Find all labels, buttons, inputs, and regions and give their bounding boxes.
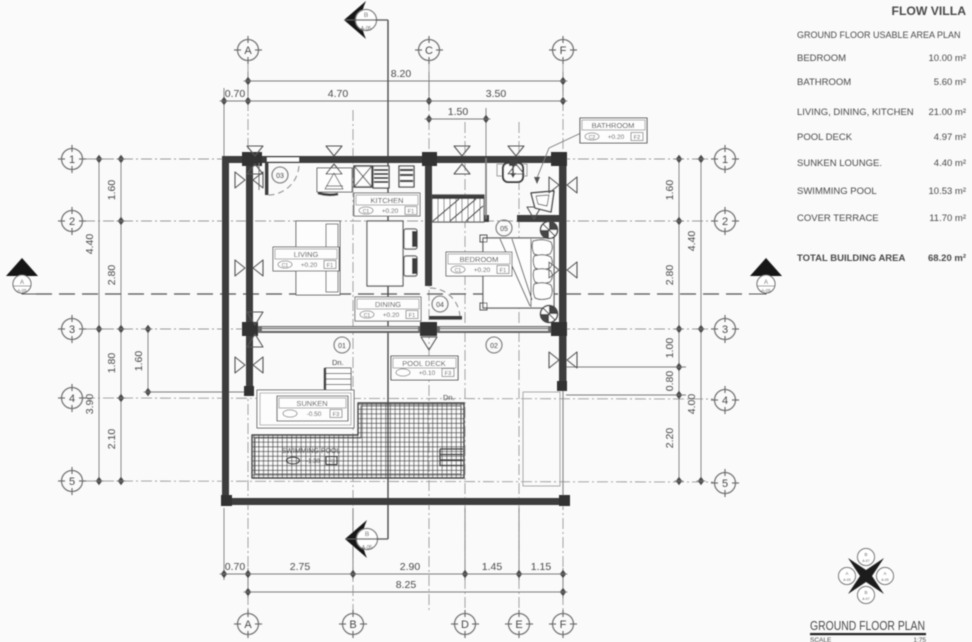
svg-text:4.40: 4.40 — [84, 234, 96, 255]
svg-text:1.80: 1.80 — [106, 353, 118, 374]
svg-text:4: 4 — [722, 395, 728, 407]
svg-text:A: A — [883, 571, 886, 576]
svg-text:LIVING: LIVING — [294, 250, 319, 259]
svg-text:C1: C1 — [282, 263, 289, 269]
svg-text:POOL DECK: POOL DECK — [402, 359, 445, 368]
svg-text:A-05: A-05 — [843, 578, 850, 582]
svg-text:B: B — [364, 12, 368, 19]
svg-text:5: 5 — [69, 476, 75, 488]
svg-text:C1: C1 — [363, 209, 370, 215]
svg-text:1.60: 1.60 — [133, 351, 145, 372]
svg-text:E: E — [515, 619, 522, 631]
svg-text:Dn.: Dn. — [443, 393, 455, 402]
svg-text:0.80: 0.80 — [664, 371, 676, 392]
svg-text:10.00 m²: 10.00 m² — [929, 53, 967, 64]
svg-text:A: A — [20, 280, 24, 286]
svg-text:5: 5 — [722, 478, 728, 490]
svg-text:D: D — [461, 619, 469, 631]
svg-text:A: A — [845, 571, 848, 576]
svg-text:68.20 m²: 68.20 m² — [928, 253, 966, 264]
svg-text:2.75: 2.75 — [290, 561, 311, 573]
svg-text:2.80: 2.80 — [106, 265, 118, 286]
svg-text:1.60: 1.60 — [664, 180, 676, 201]
svg-text:3.50: 3.50 — [486, 88, 507, 100]
svg-text:+0.20: +0.20 — [608, 134, 625, 141]
svg-text:3: 3 — [69, 324, 75, 336]
svg-text:LIVING, DINING, KITCHEN: LIVING, DINING, KITCHEN — [797, 107, 914, 118]
svg-text:POOL DECK: POOL DECK — [797, 132, 853, 143]
svg-text:F1: F1 — [500, 268, 506, 274]
svg-text:DINING: DINING — [375, 300, 401, 309]
svg-text:F2: F2 — [634, 135, 640, 141]
svg-text:1: 1 — [69, 154, 75, 166]
svg-text:+0.10: +0.10 — [419, 370, 436, 377]
svg-text:2.90: 2.90 — [400, 561, 421, 573]
svg-text:8.20: 8.20 — [391, 68, 412, 80]
svg-text:B: B — [864, 552, 867, 557]
svg-text:3.90: 3.90 — [84, 394, 96, 415]
svg-text:4.00: 4.00 — [686, 394, 698, 415]
svg-text:1.60: 1.60 — [106, 180, 118, 201]
svg-text:BATHROOM: BATHROOM — [797, 77, 851, 88]
svg-text:+0.20: +0.20 — [383, 312, 400, 319]
svg-text:+0.20: +0.20 — [474, 267, 491, 274]
svg-text:COVER TERRACE: COVER TERRACE — [797, 213, 879, 224]
svg-text:SCALE: SCALE — [810, 637, 832, 642]
svg-text:F: F — [560, 619, 567, 631]
svg-text:2.20: 2.20 — [664, 428, 676, 449]
svg-text:B: B — [349, 619, 356, 631]
svg-text:04: 04 — [436, 302, 444, 309]
svg-text:1: 1 — [722, 154, 728, 166]
svg-text:+0.20: +0.20 — [382, 208, 399, 215]
svg-text:BEDROOM: BEDROOM — [460, 255, 499, 264]
svg-text:B: B — [365, 531, 369, 538]
svg-text:2.80: 2.80 — [664, 265, 676, 286]
svg-text:1:75: 1:75 — [913, 637, 926, 642]
svg-text:0.70: 0.70 — [225, 561, 246, 573]
svg-text:03: 03 — [276, 173, 284, 180]
svg-text:11.70 m²: 11.70 m² — [929, 213, 966, 224]
svg-text:01: 01 — [338, 343, 346, 350]
svg-text:A-07: A-07 — [862, 597, 869, 601]
svg-text:B: B — [864, 590, 867, 595]
svg-text:-0.50: -0.50 — [307, 411, 322, 418]
svg-text:8.25: 8.25 — [396, 579, 417, 591]
svg-text:TOTAL BUILDING AREA: TOTAL BUILDING AREA — [797, 253, 906, 264]
svg-text:2: 2 — [69, 216, 75, 228]
svg-text:GROUND FLOOR PLAN: GROUND FLOOR PLAN — [810, 619, 925, 633]
svg-text:A: A — [764, 280, 768, 286]
svg-text:+0.20: +0.20 — [301, 262, 318, 269]
svg-text:FLOW VILLA: FLOW VILLA — [892, 4, 967, 18]
svg-text:4.70: 4.70 — [328, 88, 349, 100]
svg-text:A: A — [244, 45, 252, 57]
svg-text:GROUND FLOOR USABLE AREA PLAN: GROUND FLOOR USABLE AREA PLAN — [797, 30, 961, 40]
svg-text:SUNKEN LOUNGE.: SUNKEN LOUNGE. — [797, 158, 882, 169]
svg-text:1.00: 1.00 — [664, 338, 676, 359]
svg-text:A-05: A-05 — [362, 545, 373, 551]
svg-text:1.50: 1.50 — [448, 106, 469, 118]
svg-text:C1: C1 — [455, 268, 462, 274]
svg-text:2.10: 2.10 — [106, 429, 118, 450]
svg-text:02: 02 — [490, 343, 498, 350]
svg-text:F1: F1 — [327, 263, 333, 269]
svg-text:F3: F3 — [445, 371, 451, 377]
svg-text:A: A — [244, 619, 252, 631]
svg-text:F3: F3 — [333, 412, 339, 418]
svg-text:-1.30: -1.30 — [306, 459, 320, 465]
svg-text:05: 05 — [500, 226, 508, 233]
svg-text:4: 4 — [69, 393, 75, 405]
svg-text:5.60 m²: 5.60 m² — [934, 77, 966, 88]
svg-text:C2: C2 — [589, 135, 596, 141]
svg-text:F1: F1 — [409, 313, 415, 319]
svg-text:0.70: 0.70 — [225, 88, 246, 100]
svg-text:4.40: 4.40 — [686, 231, 698, 252]
svg-text:4.97 m²: 4.97 m² — [934, 132, 966, 143]
svg-text:C1: C1 — [364, 313, 371, 319]
svg-text:1.15: 1.15 — [531, 561, 552, 573]
svg-text:BATHROOM: BATHROOM — [592, 121, 635, 130]
svg-text:2: 2 — [722, 216, 728, 228]
svg-text:10.53 m²: 10.53 m² — [929, 186, 967, 197]
svg-text:3: 3 — [722, 324, 728, 336]
svg-text:F3: F3 — [329, 459, 335, 465]
svg-text:BEDROOM: BEDROOM — [797, 53, 846, 64]
svg-text:A-05: A-05 — [17, 288, 27, 293]
svg-text:KITCHEN: KITCHEN — [371, 196, 404, 205]
svg-text:SWIMMING POOL: SWIMMING POOL — [797, 186, 877, 197]
svg-text:A-05: A-05 — [361, 26, 372, 32]
svg-text:F1: F1 — [408, 209, 414, 215]
svg-text:C: C — [425, 45, 433, 57]
svg-text:Dn.: Dn. — [332, 358, 344, 367]
svg-text:21.00 m²: 21.00 m² — [929, 107, 967, 118]
svg-text:4.40 m²: 4.40 m² — [934, 158, 966, 169]
svg-text:A-07: A-07 — [862, 559, 869, 563]
svg-text:SUNKEN: SUNKEN — [296, 399, 327, 408]
svg-text:1.45: 1.45 — [482, 561, 503, 573]
svg-text:A-05: A-05 — [881, 578, 888, 582]
svg-text:A-05: A-05 — [761, 288, 771, 293]
svg-text:F: F — [560, 45, 567, 57]
svg-text:SWIMMING POOL: SWIMMING POOL — [282, 448, 341, 455]
